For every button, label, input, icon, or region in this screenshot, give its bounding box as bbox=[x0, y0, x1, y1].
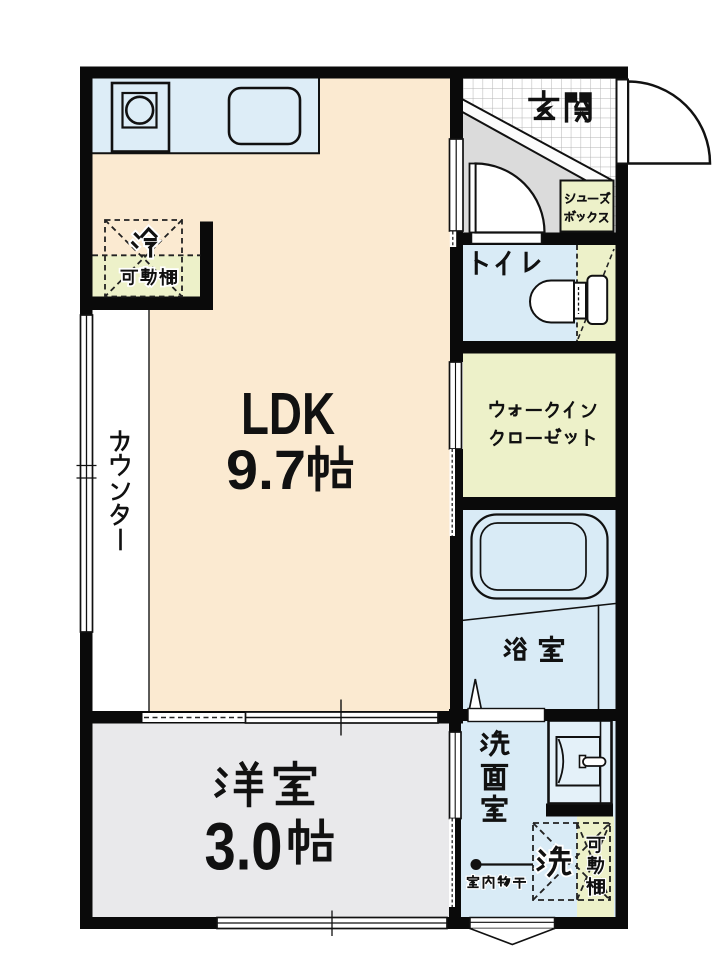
svg-text:9.7: 9.7 bbox=[226, 438, 306, 501]
svg-text:3.0: 3.0 bbox=[205, 810, 283, 885]
